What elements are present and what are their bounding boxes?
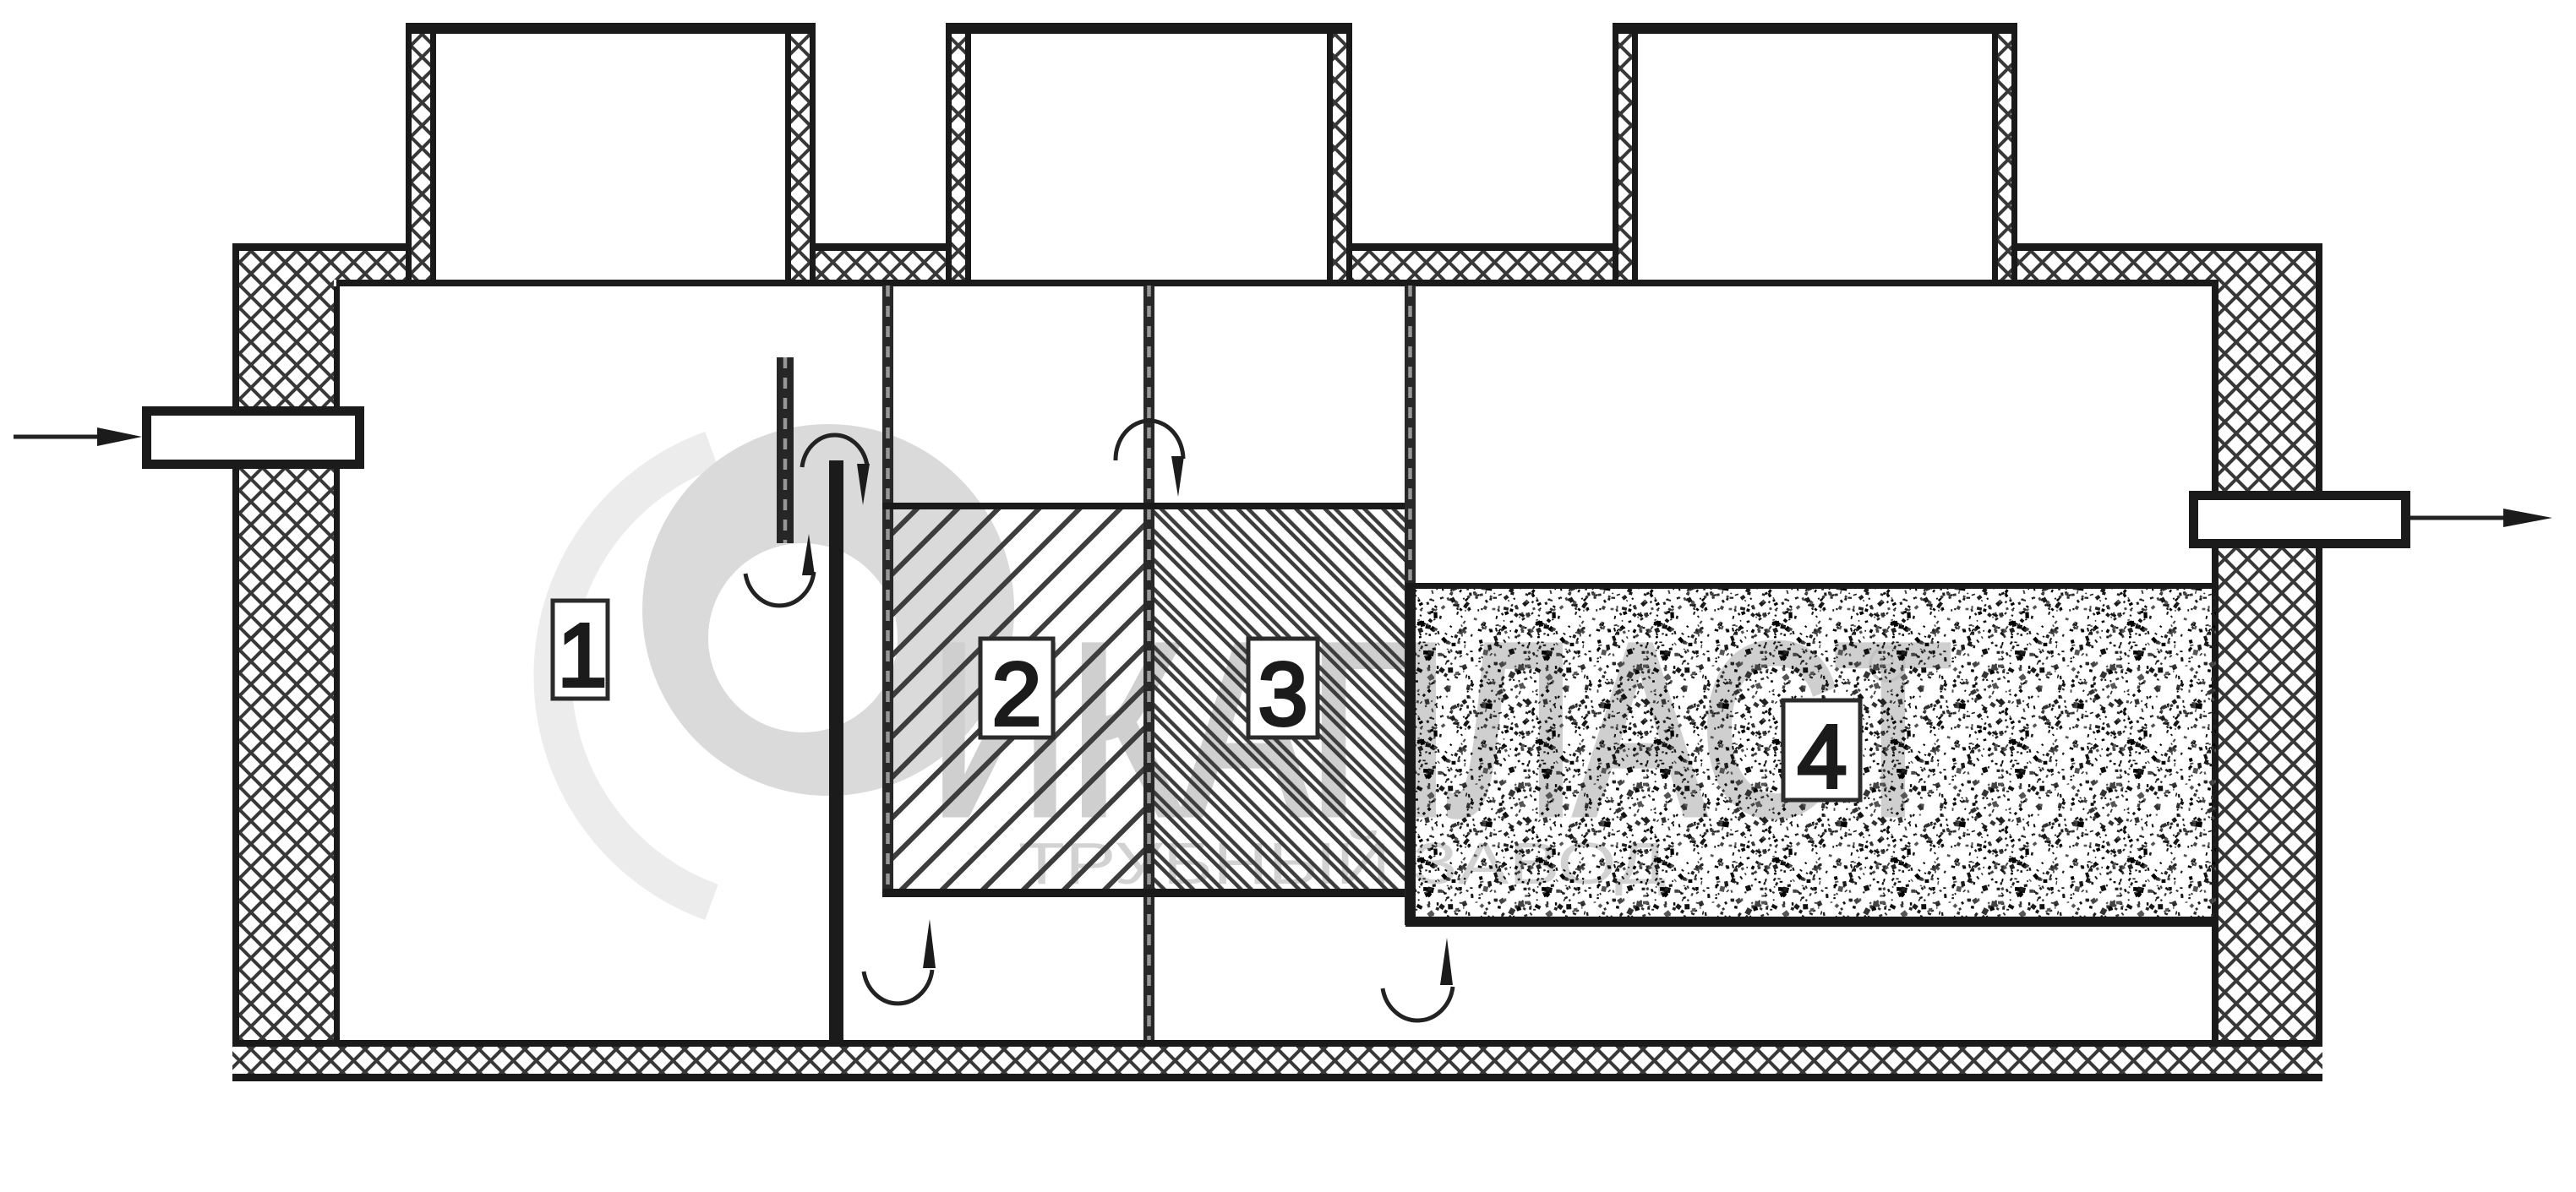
- svg-text:1: 1: [558, 606, 608, 705]
- svg-text:2: 2: [992, 645, 1042, 744]
- svg-text:3: 3: [1258, 645, 1308, 744]
- svg-text:4: 4: [1798, 707, 1847, 807]
